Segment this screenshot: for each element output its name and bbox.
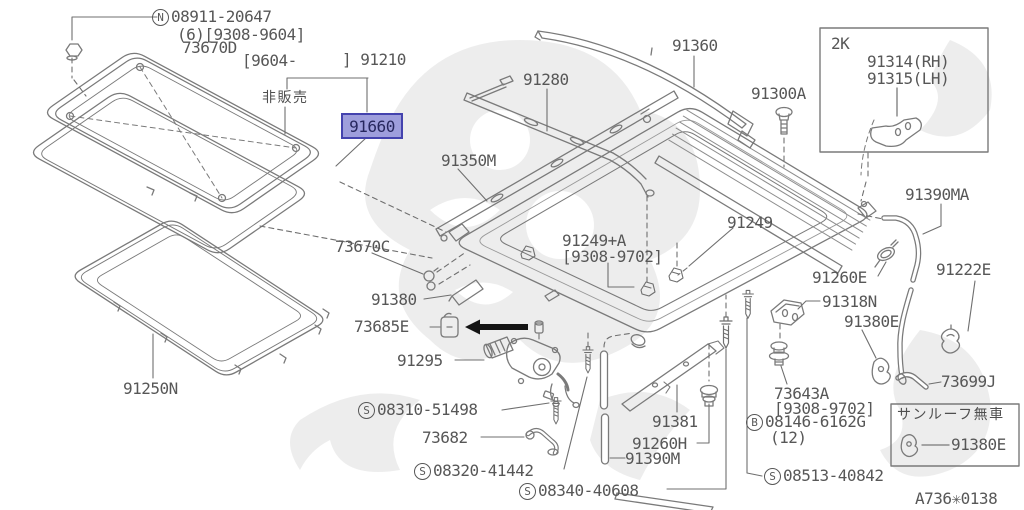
bolt-91300a [776,108,792,135]
part-91280[interactable]: 91280 [523,71,569,88]
lid-nut-08911 [66,44,82,60]
circled-b-icon: B [746,414,763,431]
box-no-sunroof-title: サンルーフ無車 [897,407,1005,424]
part-73670c[interactable]: 73670C [335,238,390,255]
part-08320-41442[interactable]: S08320-41442 [414,462,533,480]
part-08340-40608-text: 08340-40608 [538,481,638,500]
part-91350m[interactable]: 91350M [441,152,496,169]
part-73682[interactable]: 73682 [422,429,468,446]
part-91380e-right[interactable]: 91380E [844,313,899,330]
note-91249a-range-text: [9308-9702] [562,247,662,266]
note-08146-qty: (12) [770,429,807,446]
circled-n-icon: N [152,9,169,26]
note-date-open-text: [9604- [242,51,297,70]
note-not-sold: 非販売 [262,90,309,107]
part-08310-51498-text: 08310-51498 [377,400,477,419]
box-no-sunroof-title-text: サンルーフ無車 [897,407,1005,423]
screw-08340 [720,317,732,348]
part-91280-text: 91280 [523,70,569,89]
clamp-91260e [875,240,898,267]
note-date-open: [9604- [242,52,297,69]
part-73670c-text: 73670C [335,237,390,256]
part-91360[interactable]: 91360 [672,37,718,54]
part-73670d[interactable]: 73670D [182,39,237,56]
part-08320-41442-text: 08320-41442 [433,461,533,480]
part-91295[interactable]: 91295 [397,352,443,369]
part-91318n[interactable]: 91318N [822,293,877,310]
part-08911-20647[interactable]: N08911-20647 [152,8,271,26]
part-91380e-box[interactable]: 91380E [951,436,1006,453]
part-91315-lh-text: 91315(LH) [867,69,949,88]
part-73685e-text: 73685E [354,317,409,336]
part-91390ma-text: 91390MA [905,185,969,204]
note-not-sold-text: 非販売 [262,90,309,106]
part-91390ma[interactable]: 91390MA [905,186,969,203]
grommet-91380e [872,358,890,384]
diagram-code-text: A736✳0138 [915,489,997,508]
part-73685e[interactable]: 73685E [354,318,409,335]
part-91390m-text: 91390M [625,449,680,468]
part-73699j-text: 73699J [941,372,996,391]
part-91250n[interactable]: 91250N [123,380,178,397]
part-91250n-text: 91250N [123,379,178,398]
circled-s-icon: S [414,463,431,480]
part-91350m-text: 91350M [441,151,496,170]
circled-s-icon: S [358,402,375,419]
part-91249-text: 91249 [727,213,773,232]
part-91249[interactable]: 91249 [727,214,773,231]
diagram-code: A736✳0138 [915,490,997,507]
part-91222e-text: 91222E [936,260,991,279]
part-91260e[interactable]: 91260E [812,269,867,286]
note-91249a-range: [9308-9702] [562,248,662,265]
circled-s-icon: S [519,483,536,500]
part-91360-text: 91360 [672,36,718,55]
part-08310-51498[interactable]: S08310-51498 [358,401,477,419]
screw-08513 [743,290,754,318]
bracket-91318n [771,300,804,325]
box-2k-tag-text: 2K [831,34,849,53]
part-91380e-box-text: 91380E [951,435,1006,454]
part-91380e-right-text: 91380E [844,312,899,331]
part-08340-40608[interactable]: S08340-40608 [519,482,638,500]
part-08513-40842[interactable]: S08513-40842 [764,467,883,485]
part-91300a[interactable]: 91300A [751,85,806,102]
part-91315-lh[interactable]: 91315(LH) [867,70,949,87]
part-91210[interactable]: ] 91210 [342,51,406,68]
nut-91260h [701,386,718,407]
part-91295-text: 91295 [397,351,443,370]
part-91210-text: ] 91210 [342,50,406,69]
parts-diagram-sunroof: 91660 N08911-20647(6)[9308-9604]73670D[9… [0,0,1024,510]
note-08146-qty-text: (12) [770,428,807,447]
part-08513-40842-text: 08513-40842 [783,466,883,485]
highlighted-part-91660[interactable]: 91660 [341,113,403,139]
drain-tube-91390m [601,351,609,464]
bolt-73643a [770,342,789,365]
box-2k-tag: 2K [831,35,849,52]
part-91222e[interactable]: 91222E [936,261,991,278]
part-08911-20647-text: 08911-20647 [171,7,271,26]
part-91380[interactable]: 91380 [371,291,417,308]
crank-handle-73682 [526,430,558,455]
part-91380-text: 91380 [371,290,417,309]
glass-lid-assembly [48,53,319,212]
part-91381[interactable]: 91381 [652,413,698,430]
part-91314-rh[interactable]: 91314(RH) [867,53,949,70]
clip-91249 [669,268,683,282]
sunshade-panel [75,221,329,375]
part-91260e-text: 91260E [812,268,867,287]
part-73670d-text: 73670D [182,38,237,57]
part-91300a-text: 91300A [751,84,806,103]
part-73682-text: 73682 [422,428,468,447]
part-73699j[interactable]: 73699J [941,373,996,390]
circled-s-icon: S [764,468,781,485]
part-91390m[interactable]: 91390M [625,450,680,467]
part-91318n-text: 91318N [822,292,877,311]
part-91381-text: 91381 [652,412,698,431]
